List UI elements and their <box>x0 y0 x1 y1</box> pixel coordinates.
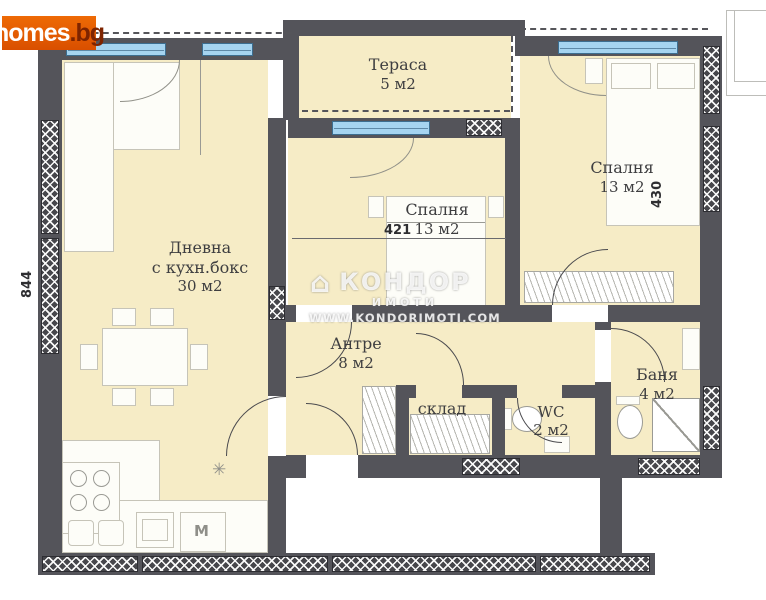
window-bedroom-right <box>558 41 678 54</box>
wall-bedrooms-bottom <box>608 305 722 322</box>
dashed-line-terrace-right <box>511 36 513 112</box>
storage-shelf <box>410 414 490 454</box>
hatch-wall-segment <box>42 556 138 572</box>
dining-chair <box>80 344 98 370</box>
dining-chair <box>112 308 136 326</box>
dining-table <box>102 328 188 386</box>
room-name: Баня <box>636 365 678 385</box>
stove-burner <box>93 470 110 487</box>
room-area: 13 м2 <box>405 220 468 238</box>
wall-bath-left <box>595 322 611 330</box>
dining-chair <box>190 344 208 370</box>
window-living <box>202 43 253 56</box>
hatch-wall-segment <box>41 120 59 234</box>
room-name-2: с кухн.бокс <box>152 258 248 278</box>
washing-machine-label: М <box>194 522 209 540</box>
hatch-wall-segment <box>332 556 536 572</box>
room-area: 2 м2 <box>533 421 569 439</box>
wall-terrace-top <box>283 20 525 36</box>
wall-bedrooms-bottom <box>286 305 296 322</box>
neighbour-balcony-outline <box>734 10 766 82</box>
hatch-wall-segment <box>142 556 328 572</box>
nightstand <box>368 196 384 218</box>
vent-symbol: ✳ <box>212 460 226 480</box>
room-area: 4 м2 <box>636 385 678 403</box>
stove-burner <box>70 494 87 511</box>
wall-wc-top <box>562 385 595 398</box>
dining-chair <box>112 388 136 406</box>
room-name: Спалня <box>405 200 468 220</box>
dimension-left-wall: 844 <box>20 252 35 298</box>
hatch-wall-segment <box>540 556 650 572</box>
label-bath: Баня 4 м2 <box>636 365 678 403</box>
room-area: 13 м2 <box>590 178 653 196</box>
hatch-wall-segment <box>638 458 700 475</box>
kitchen-sink-basin <box>142 519 168 541</box>
window-mullion <box>253 38 293 60</box>
dimension-line <box>292 238 506 239</box>
toilet-bowl <box>617 405 643 439</box>
dining-chair <box>150 308 174 326</box>
room-area: 8 м2 <box>330 354 381 372</box>
kitchen-cabinet <box>68 520 94 546</box>
stove-burner <box>93 494 110 511</box>
label-bedroom-right: Спалня 13 м2 <box>590 158 653 196</box>
hatch-wall-segment <box>41 238 59 354</box>
shower <box>652 398 700 452</box>
room-name: Антре <box>330 334 381 354</box>
bed-pillow <box>611 63 651 89</box>
window-bedroom-mid <box>332 121 430 135</box>
room-area: 30 м2 <box>152 277 248 295</box>
window-mullion <box>166 38 202 60</box>
wall-living-antre-lower <box>268 456 286 553</box>
label-wc: WC 2 м2 <box>533 403 569 440</box>
sofa-chaise <box>64 62 114 252</box>
label-bedroom-mid: Спалня 13 м2 <box>405 200 468 238</box>
kitchen-cabinet <box>98 520 124 546</box>
watermark-agency-sub: ИМОТИ <box>372 296 438 309</box>
bed-pillow <box>657 63 695 89</box>
hatch-wall-segment <box>462 458 520 475</box>
logo-brand-text: homes <box>0 19 70 48</box>
room-name: Спалня <box>590 158 653 178</box>
homes-bg-logo: homes.bg <box>2 16 96 50</box>
wall-wc-top <box>492 385 517 398</box>
room-area: 5 м2 <box>369 75 427 93</box>
hatch-wall-segment <box>703 126 720 212</box>
hatch-wall-segment <box>269 286 285 320</box>
stove-burner <box>70 470 87 487</box>
hatch-wall-segment <box>703 386 720 450</box>
wardrobe <box>362 386 396 454</box>
watermark-house-icon: ⌂ <box>310 266 330 299</box>
room-name: Тераса <box>369 55 427 75</box>
wall-step-vertical <box>600 478 622 556</box>
label-living: Дневна с кухн.бокс 30 м2 <box>152 238 248 295</box>
bath-sink <box>682 328 700 370</box>
room-name: склад <box>418 399 467 419</box>
dashed-line-terrace-bottom <box>302 110 510 112</box>
wall-between-bedrooms <box>505 118 520 305</box>
curtain-line <box>200 60 201 155</box>
watermark-agency-name: КОНДОР <box>339 268 470 296</box>
hatch-wall-segment <box>466 119 502 136</box>
label-terrace: Тераса 5 м2 <box>369 55 427 93</box>
label-antre: Антре 8 м2 <box>330 334 381 372</box>
floor-plan: М ✳ <box>0 0 766 600</box>
hatch-wall-segment <box>703 46 720 114</box>
dining-chair <box>150 388 174 406</box>
logo-tld-text: .bg <box>70 19 105 48</box>
room-name: Дневна <box>152 238 248 258</box>
dashed-line-bedroom-right-top <box>520 28 708 30</box>
label-storage: склад <box>418 399 467 419</box>
wall-living-bedroom <box>268 118 286 396</box>
nightstand <box>488 196 504 218</box>
wall-bath-left <box>595 382 611 458</box>
wall-storage-left <box>396 385 409 458</box>
watermark-url: WWW.KONDORIMOTI.COM <box>309 311 501 325</box>
wall-antre-bottom <box>286 455 306 478</box>
room-name: WC <box>533 403 569 421</box>
